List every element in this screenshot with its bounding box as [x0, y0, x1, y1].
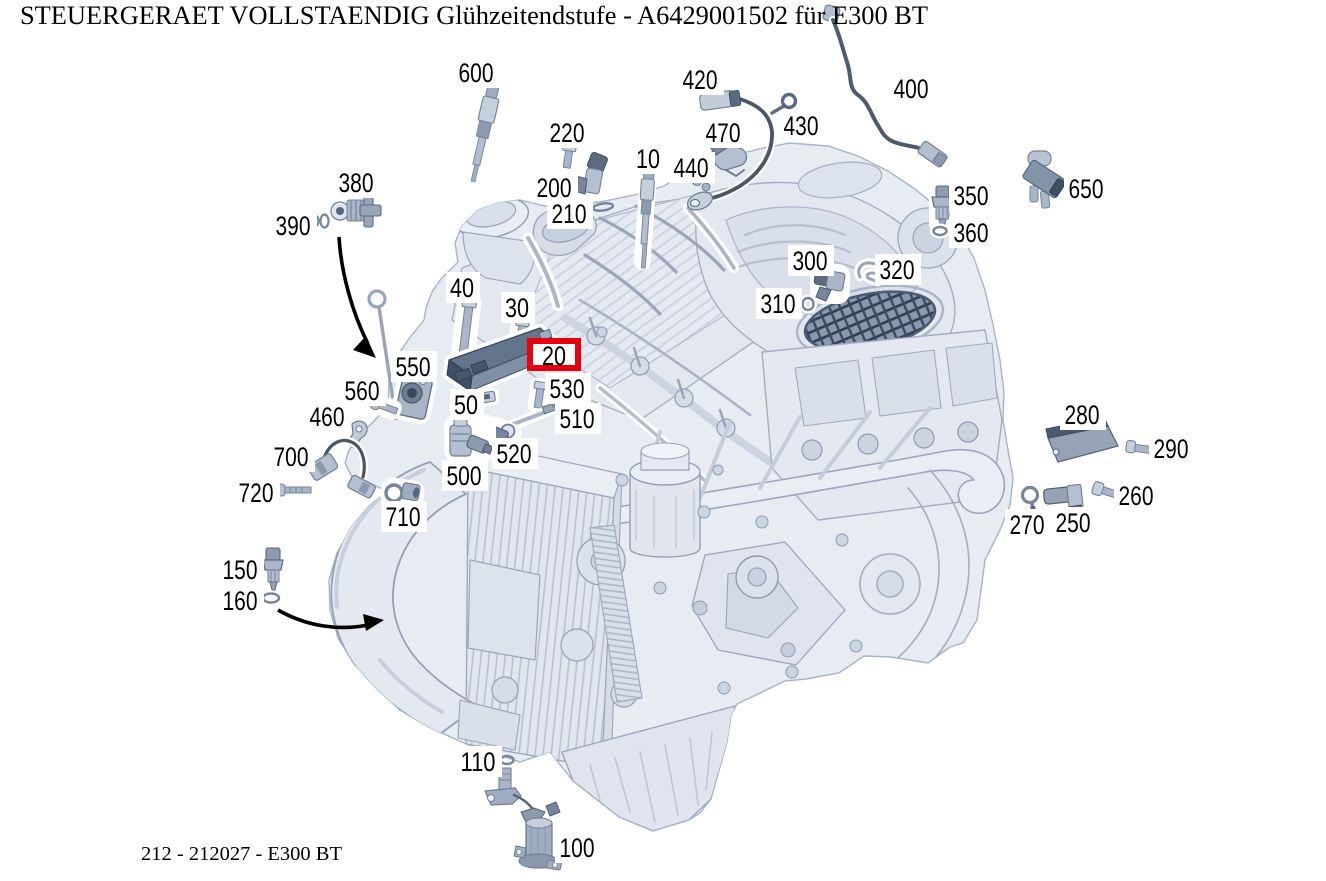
svg-text:390: 390 — [276, 211, 311, 241]
svg-text:110: 110 — [461, 747, 496, 777]
svg-text:310: 310 — [761, 289, 796, 319]
svg-text:210: 210 — [552, 199, 587, 229]
svg-text:510: 510 — [560, 404, 595, 434]
svg-text:150: 150 — [223, 555, 258, 585]
svg-text:STEUERGERAET VOLLSTAENDIG Glüh: STEUERGERAET VOLLSTAENDIG Glühzeitendstu… — [20, 0, 928, 30]
svg-text:250: 250 — [1056, 508, 1091, 538]
svg-text:40: 40 — [450, 273, 474, 303]
svg-text:220: 220 — [550, 118, 585, 148]
svg-text:710: 710 — [386, 502, 421, 532]
svg-text:420: 420 — [683, 65, 718, 95]
svg-text:320: 320 — [880, 255, 915, 285]
svg-text:160: 160 — [223, 586, 258, 616]
svg-text:440: 440 — [674, 153, 709, 183]
svg-text:290: 290 — [1154, 434, 1189, 464]
svg-text:500: 500 — [447, 461, 482, 491]
svg-text:600: 600 — [459, 58, 494, 88]
svg-text:470: 470 — [706, 118, 741, 148]
svg-text:260: 260 — [1119, 481, 1154, 511]
svg-text:350: 350 — [954, 181, 989, 211]
svg-text:300: 300 — [793, 246, 828, 276]
svg-text:50: 50 — [454, 390, 478, 420]
svg-text:430: 430 — [784, 111, 819, 141]
svg-text:400: 400 — [894, 74, 929, 104]
svg-text:520: 520 — [497, 439, 532, 469]
svg-text:270: 270 — [1010, 510, 1045, 540]
svg-text:212 - 212027 - E300 BT: 212 - 212027 - E300 BT — [141, 843, 342, 865]
svg-text:380: 380 — [339, 168, 374, 198]
svg-text:10: 10 — [636, 144, 660, 174]
svg-text:360: 360 — [954, 218, 989, 248]
svg-text:460: 460 — [310, 402, 345, 432]
svg-text:650: 650 — [1069, 174, 1104, 204]
svg-text:100: 100 — [560, 833, 595, 863]
svg-text:530: 530 — [550, 374, 585, 404]
svg-text:720: 720 — [239, 478, 274, 508]
svg-text:280: 280 — [1065, 400, 1100, 430]
svg-text:30: 30 — [505, 293, 529, 323]
svg-text:20: 20 — [542, 341, 566, 371]
svg-text:550: 550 — [396, 352, 431, 382]
svg-text:700: 700 — [274, 442, 309, 472]
